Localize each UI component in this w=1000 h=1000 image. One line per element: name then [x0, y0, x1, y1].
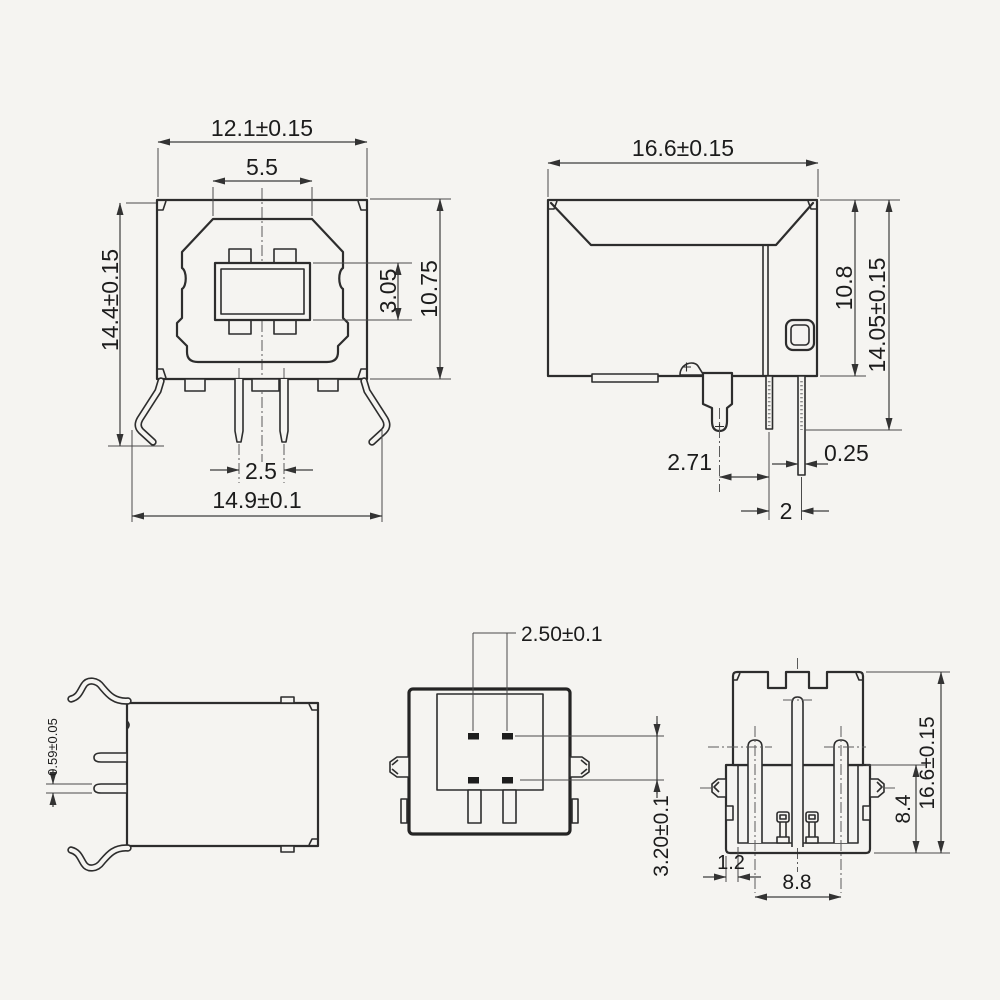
- side-body-outline: [548, 200, 817, 376]
- bottom-signal-pin: [777, 812, 789, 843]
- dim-front-pin-pitch: 2.5: [210, 458, 313, 484]
- dim-label-front-pin-pitch: 2.5: [245, 458, 277, 484]
- dim-front-inner-width: 5.5: [213, 154, 312, 216]
- front-contact-tab: [229, 320, 251, 334]
- front-view: 12.1±0.15 5.5 14.4±0.15 3.05: [97, 115, 451, 522]
- dim-label-bottom-pin-span: 8.8: [782, 871, 811, 894]
- usb-b-connector-technical-drawing: 12.1±0.15 5.5 14.4±0.15 3.05: [0, 0, 1000, 1000]
- rear-leg: [503, 790, 516, 823]
- dim-top-leg-thickness: 0.59±0.05: [45, 718, 92, 807]
- rear-solder-pad: [502, 777, 513, 784]
- dim-label-bottom-body-depth: 8.4: [892, 794, 915, 824]
- dim-label-side-overall-height: 14.05±0.15: [864, 258, 890, 373]
- front-pin: [235, 379, 243, 442]
- bottom-signal-pin: [806, 812, 818, 843]
- side-shell-chamfer: [551, 203, 813, 245]
- rear-solder-pad: [502, 733, 513, 740]
- rear-side-tab: [570, 757, 589, 777]
- dim-front-tongue: 3.05: [313, 263, 412, 320]
- front-foot: [318, 379, 338, 391]
- top-corner-notch: [309, 704, 318, 710]
- side-locator-peg: [703, 373, 732, 431]
- dim-bottom-pin-span: 8.8: [755, 871, 841, 897]
- dim-label-side-body-height: 10.8: [831, 266, 857, 311]
- dim-rear-row-spacing: 3.20±0.1: [515, 716, 673, 877]
- bottom-center-pin: [792, 697, 803, 847]
- front-contact-tab: [274, 249, 296, 263]
- rear-leg: [468, 790, 481, 823]
- front-foot: [185, 379, 205, 391]
- dim-side-pin-thickness: 0.25: [772, 440, 869, 466]
- dim-side-depth: 16.6±0.15: [548, 135, 818, 197]
- top-pin: [94, 753, 127, 762]
- front-foot: [252, 379, 279, 391]
- bottom-view: 16.6±0.15 8.4 1.2 8.8: [700, 658, 950, 897]
- front-pin: [280, 379, 288, 442]
- rear-view: 2.50±0.1 3.20±0.1: [390, 623, 673, 877]
- side-standoff-ledge: [592, 374, 658, 382]
- bottom-side-nub: [726, 806, 733, 820]
- rear-insulator-outline: [437, 694, 543, 790]
- dim-rear-pad-pitch: 2.50±0.1: [473, 623, 603, 731]
- rear-solder-pad: [468, 733, 479, 740]
- front-contact-tab: [274, 320, 296, 334]
- dim-label-rear-pad-pitch: 2.50±0.1: [521, 623, 603, 646]
- rear-side-ridge: [572, 799, 578, 823]
- front-corner-notch: [157, 369, 166, 378]
- top-edge-tab: [281, 697, 294, 703]
- front-corner-notch: [358, 201, 367, 210]
- dim-label-bottom-depth: 16.6±0.15: [916, 716, 939, 809]
- dim-label-front-width: 12.1±0.15: [211, 115, 313, 141]
- dim-label-front-overall-width: 14.9±0.1: [212, 487, 301, 513]
- dim-side-pin-spacing: 2: [741, 477, 829, 524]
- drawing-canvas: 12.1±0.15 5.5 14.4±0.15 3.05: [0, 0, 1000, 1000]
- dim-label-bottom-wall: 1.2: [717, 852, 745, 874]
- side-crimp-bump: [680, 363, 704, 375]
- front-corner-notch: [358, 369, 367, 378]
- top-corner-notch: [309, 839, 318, 845]
- dim-bottom-depth: 16.6±0.15: [866, 672, 950, 853]
- dim-label-front-height: 14.4±0.15: [97, 249, 123, 351]
- top-pin: [94, 784, 127, 793]
- top-body-outline: [127, 703, 318, 846]
- front-contact-tab: [229, 249, 251, 263]
- dim-label-side-pin-spacing: 2: [780, 498, 793, 524]
- dim-label-side-depth: 16.6±0.15: [632, 135, 734, 161]
- front-corner-notch: [157, 201, 166, 210]
- dim-front-height: 14.4±0.15: [97, 203, 164, 446]
- rear-solder-pad: [468, 777, 479, 784]
- dim-label-front-tongue: 3.05: [375, 269, 401, 314]
- dim-label-top-leg-thickness: 0.59±0.05: [45, 718, 60, 776]
- dim-side-overall-height: 14.05±0.15: [805, 200, 902, 430]
- rear-side-ridge: [401, 799, 407, 823]
- dim-label-front-inner-width: 5.5: [246, 154, 278, 180]
- front-tongue-outer: [215, 263, 310, 320]
- top-edge-tab: [281, 846, 294, 852]
- dim-side-peg-to-pin: 2.71: [667, 432, 769, 520]
- dim-label-side-peg-to-pin: 2.71: [667, 449, 712, 475]
- side-view: 16.6±0.15 10.8 14.05±0.15 2.71 0: [548, 135, 902, 524]
- bottom-side-nub: [863, 806, 870, 820]
- rear-shell-outline: [409, 689, 570, 834]
- dim-label-side-pin-thickness: 0.25: [824, 440, 869, 466]
- rear-side-tab: [390, 757, 409, 777]
- top-view: 0.59±0.05: [45, 681, 318, 868]
- dim-label-rear-row-spacing: 3.20±0.1: [650, 795, 673, 877]
- dim-label-front-shell-height: 10.75: [416, 260, 442, 318]
